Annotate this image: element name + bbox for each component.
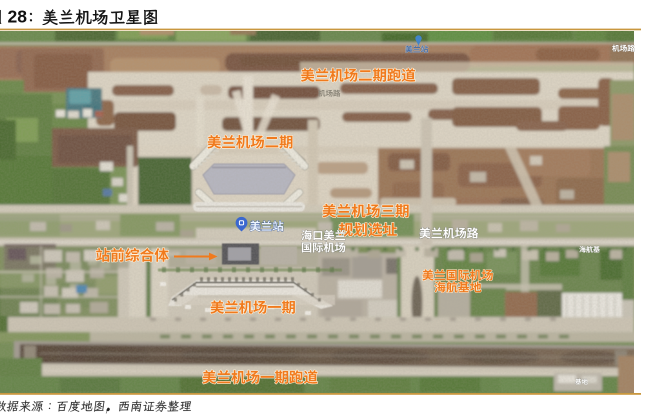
svg-text:28: 28 [8,7,28,27]
